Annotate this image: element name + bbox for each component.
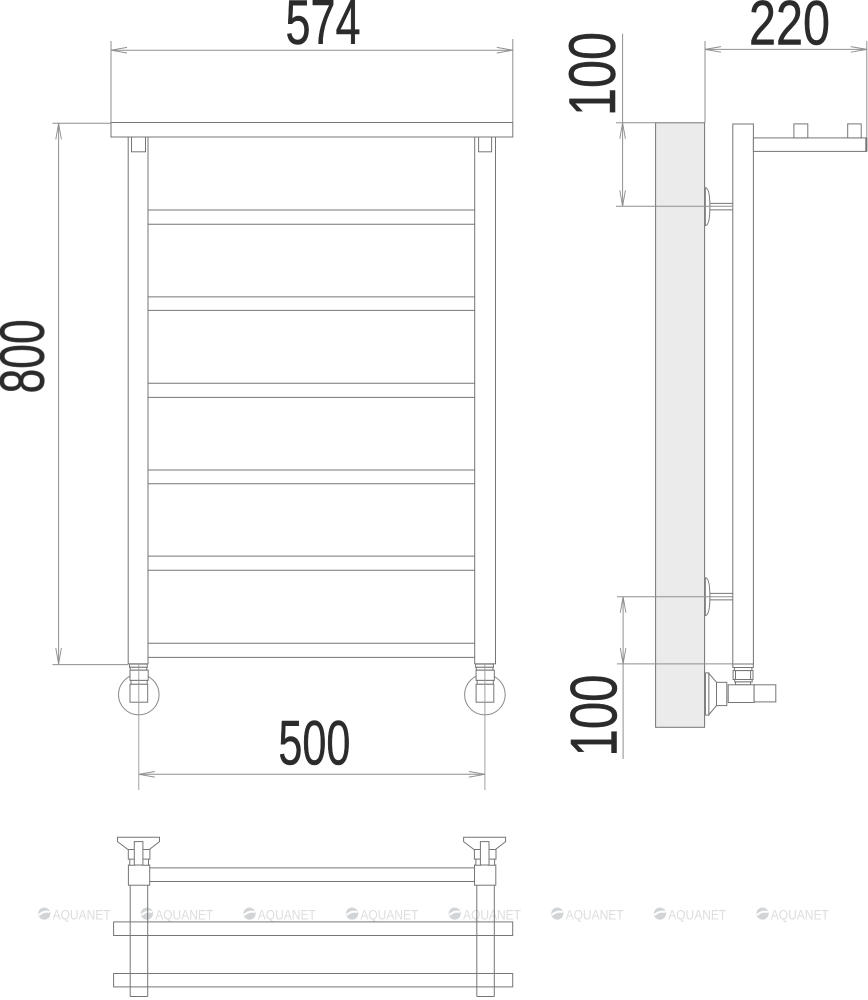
svg-text:574: 574 (286, 0, 361, 58)
svg-text:100: 100 (557, 675, 631, 757)
svg-text:AQUANET: AQUANET (53, 907, 111, 922)
svg-text:800: 800 (0, 319, 58, 393)
svg-text:220: 220 (749, 0, 830, 58)
svg-text:100: 100 (555, 32, 629, 116)
svg-text:500: 500 (278, 709, 350, 779)
